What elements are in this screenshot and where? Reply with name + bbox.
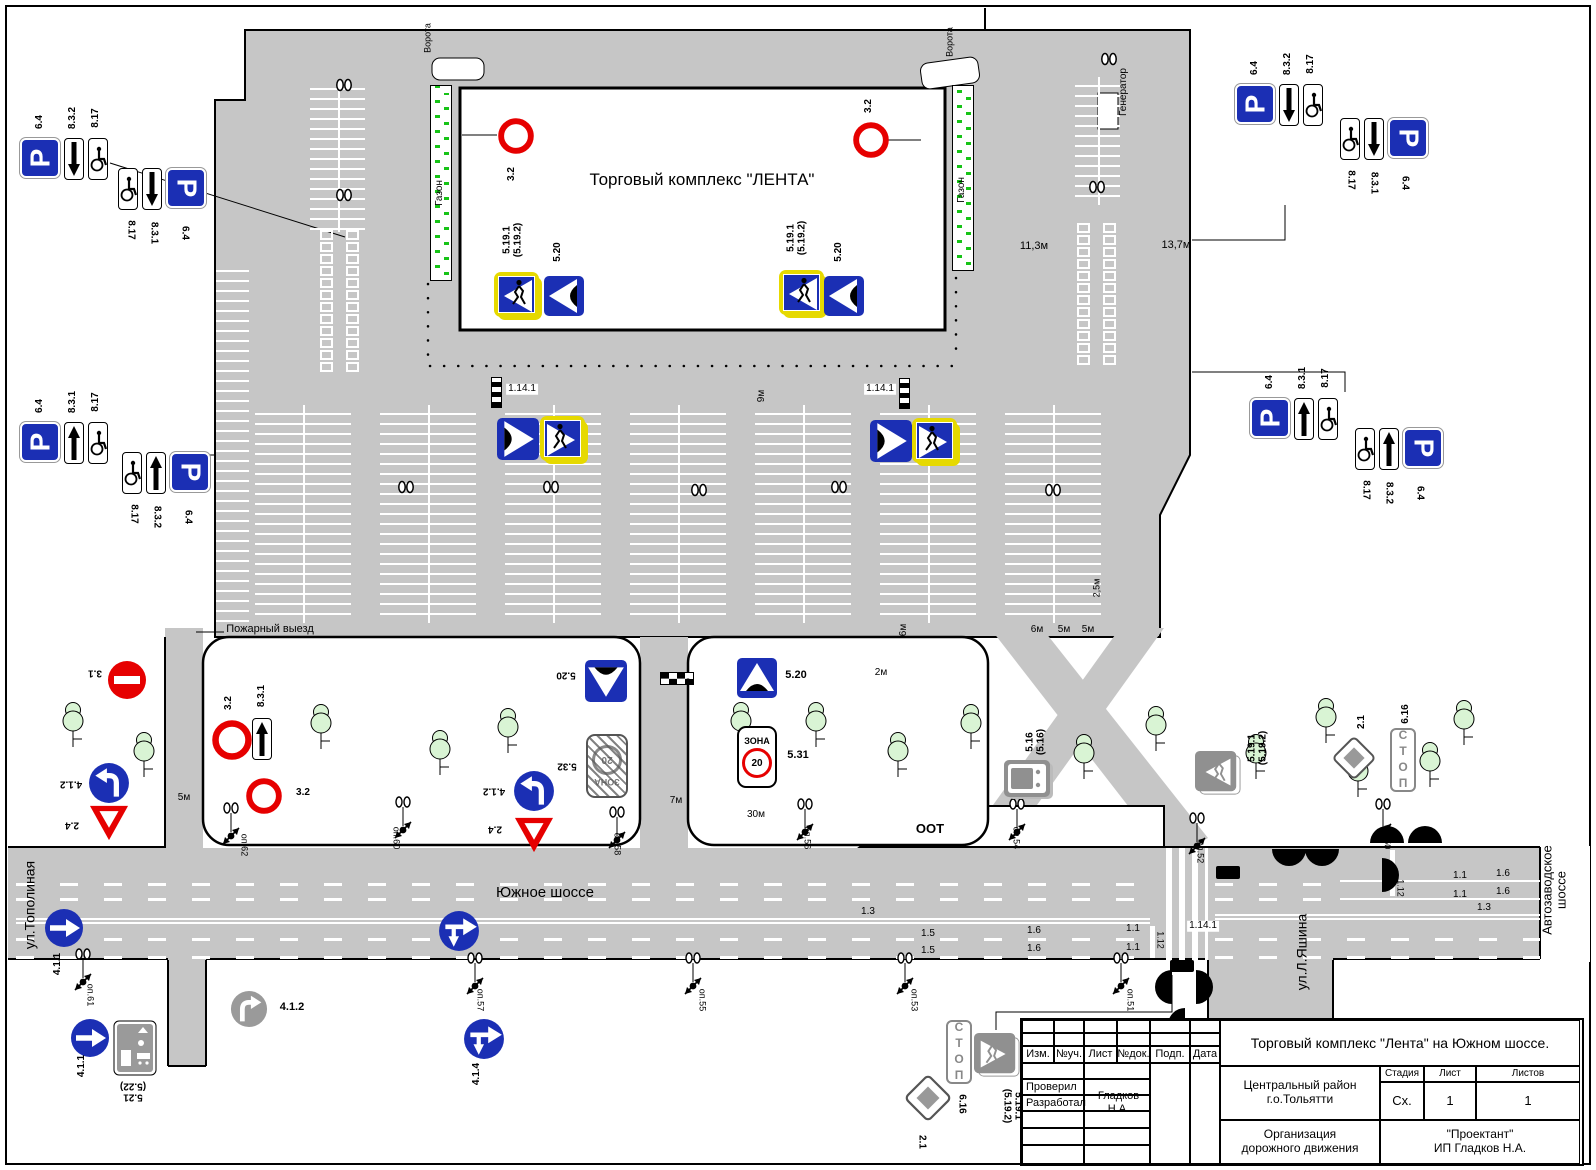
lane-line-marking xyxy=(1150,926,1155,958)
map-label: 5м xyxy=(1082,625,1094,636)
sign-4-1-4 xyxy=(438,910,480,952)
map-label: Газон xyxy=(957,177,968,203)
marked-stall xyxy=(1077,331,1090,341)
sign-5-20 xyxy=(585,660,627,702)
map-label: 5.19.1 (5.19.2) xyxy=(787,221,808,255)
marked-stall xyxy=(1103,271,1116,281)
map-label: ООТ xyxy=(916,822,944,836)
tb-col-podp: Подп. xyxy=(1150,1046,1190,1063)
tb-sheet-value: 1 xyxy=(1424,1082,1476,1120)
parking-stalls xyxy=(255,405,351,623)
map-label: 8.3.1 xyxy=(68,391,79,413)
map-label: 6.4 xyxy=(1265,375,1276,389)
sign-5-20 xyxy=(737,658,777,698)
map-label: 8.3.1 xyxy=(148,222,159,244)
sign-6-4: P xyxy=(1250,398,1290,438)
marked-stall-grid xyxy=(1077,223,1119,367)
map-label: 6.4 xyxy=(35,399,46,413)
marked-stall xyxy=(320,302,333,312)
map-label: 1.6 xyxy=(1027,944,1041,955)
marked-stall xyxy=(346,326,359,336)
tb-checked-label: Проверил xyxy=(1022,1079,1084,1095)
map-label: Генератор xyxy=(1119,68,1130,116)
marked-stall xyxy=(1077,235,1090,245)
map-label: оп.58 xyxy=(612,833,621,855)
street-lamp-icon xyxy=(688,483,710,497)
lane-dash-marking xyxy=(1215,883,1335,886)
map-label: 6.4 xyxy=(1414,486,1425,500)
zebra-crossing xyxy=(1166,848,1208,960)
tb-sheets-value: 1 xyxy=(1476,1082,1580,1120)
marked-stall xyxy=(1103,307,1116,317)
marked-stall xyxy=(1103,235,1116,245)
map-label: ул.Тополиная xyxy=(23,861,38,949)
tb-sheet-label: Лист xyxy=(1424,1066,1476,1082)
marked-stall xyxy=(346,254,359,264)
sign-6-4: P xyxy=(1388,118,1428,158)
sign-4-1-2 xyxy=(88,762,130,804)
marked-stall xyxy=(320,362,333,372)
lane-line-marking xyxy=(1340,898,1540,900)
map-label: 13,7м xyxy=(1162,240,1191,252)
map-label: 1.5 xyxy=(921,946,935,957)
tb-col-uch: №уч. xyxy=(1054,1046,1084,1063)
sign-6-4: P xyxy=(166,168,206,208)
map-label: 8.3.2 xyxy=(68,107,79,129)
tb-empty xyxy=(1084,1145,1150,1164)
map-label: 5.20 xyxy=(785,670,806,682)
map-label: 8.3.1 xyxy=(257,685,268,707)
marked-stall xyxy=(320,290,333,300)
tb-empty xyxy=(1084,1020,1117,1033)
zone-word: ЗОНА xyxy=(744,736,770,746)
map-label: 5.20 xyxy=(553,242,564,261)
tb-empty xyxy=(1022,1145,1084,1164)
marked-stall xyxy=(1103,259,1116,269)
sign-3-2 xyxy=(853,122,889,158)
map-label: 6м xyxy=(899,624,910,636)
lane-line-marking xyxy=(1215,918,1540,920)
map-label: 1.6 xyxy=(1496,887,1510,898)
map-label: Пожарный выезд xyxy=(226,624,314,636)
tb-empty xyxy=(1117,1020,1150,1033)
map-label: 5.31 xyxy=(787,750,808,762)
sign-4-1-1 xyxy=(70,1018,110,1058)
tree-icon xyxy=(126,730,162,782)
sign-5-20 xyxy=(870,420,912,462)
sign-4-1-2 xyxy=(513,770,555,812)
map-label: 1.6 xyxy=(1496,869,1510,880)
marked-stall xyxy=(320,230,333,240)
sign-4-1-4 xyxy=(463,1018,505,1060)
map-label: 1.14.1 xyxy=(506,384,538,395)
traffic-signal-icon xyxy=(1408,826,1442,843)
plate-8-17 xyxy=(1318,398,1338,440)
marked-stall xyxy=(1077,247,1090,257)
street-lamp-icon xyxy=(333,188,355,202)
tb-empty xyxy=(1084,1063,1150,1079)
sign-3-2 xyxy=(498,118,534,154)
marked-stall xyxy=(1077,295,1090,305)
map-label: 30м xyxy=(747,810,765,821)
street-lamp-icon xyxy=(1098,52,1120,66)
map-label: 6.16 xyxy=(1401,704,1412,723)
marked-stall xyxy=(346,278,359,288)
map-label: 8.3.1 xyxy=(1298,367,1309,389)
street-lamp-icon xyxy=(333,78,355,92)
map-label: 5.32 xyxy=(557,760,576,771)
map-label: 6.4 xyxy=(1399,176,1410,190)
map-label: 5м xyxy=(1058,625,1070,636)
tb-empty xyxy=(1084,1128,1150,1145)
map-label: оп.54 xyxy=(1011,827,1020,849)
lane-dash-marking xyxy=(1215,898,1335,901)
traffic-signal-icon xyxy=(1305,849,1339,866)
marked-stall xyxy=(1103,295,1116,305)
sign-6-4: P xyxy=(20,422,60,462)
tb-empty xyxy=(1022,1063,1084,1079)
tb-empty xyxy=(1054,1020,1084,1033)
map-label: 4.1.2 xyxy=(280,1002,304,1014)
map-label: 1.1 xyxy=(1453,890,1467,901)
marked-stall xyxy=(320,326,333,336)
sign-5-32: ЗОНА20 xyxy=(586,734,628,798)
sign-3-1 xyxy=(107,660,147,700)
sign-5-31: ЗОНА20 xyxy=(737,726,777,788)
marked-stall xyxy=(1077,307,1090,317)
tb-empty xyxy=(1054,1033,1084,1046)
map-label: Ворота xyxy=(945,27,954,57)
lane-dash-marking xyxy=(1215,956,1540,959)
map-label: 6.4 xyxy=(179,226,190,240)
lane-dash-marking xyxy=(16,956,1150,959)
traffic-signal-icon xyxy=(1272,849,1306,866)
marked-stall xyxy=(1103,223,1116,233)
street-lamp-icon xyxy=(828,480,850,494)
marked-stall xyxy=(1103,247,1116,257)
marked-stall xyxy=(1077,259,1090,269)
tb-stage-label: Стадия xyxy=(1380,1066,1424,1082)
tb-empty xyxy=(1150,1063,1190,1164)
map-label: 2,5м xyxy=(1092,579,1101,598)
sign-5-20 xyxy=(544,276,584,316)
map-label: оп.52 xyxy=(1195,841,1204,863)
sign-6-16: СТОП xyxy=(946,1020,972,1084)
tb-empty xyxy=(1022,1020,1054,1033)
tree-icon xyxy=(422,728,458,780)
plate-8-17 xyxy=(1355,428,1375,470)
map-label: 4.1.2 xyxy=(60,778,82,789)
plate-8-3 xyxy=(64,422,84,464)
marked-stall-grid xyxy=(320,230,362,374)
map-label: 1.1 xyxy=(1453,871,1467,882)
sign-4-1-1 xyxy=(44,908,84,948)
map-label: 2м xyxy=(875,668,887,679)
map-label: 2.4 xyxy=(488,823,502,834)
map-label: 6.4 xyxy=(182,510,193,524)
tb-col-izm: Изм. xyxy=(1022,1046,1054,1063)
sign-5-19-1 xyxy=(779,270,827,318)
marked-stall xyxy=(1077,355,1090,365)
tree-icon xyxy=(303,702,339,754)
map-label: 5.19.1 (5.19.2) xyxy=(503,223,524,257)
tb-empty xyxy=(1022,1128,1084,1145)
map-label: 7м xyxy=(670,796,682,807)
sign-2-4 xyxy=(87,803,131,843)
sign-6-4: P xyxy=(1235,84,1275,124)
map-label: оп.60 xyxy=(391,827,400,849)
map-label: 4.1.1 xyxy=(77,1055,88,1077)
map-label: 8.17 xyxy=(1360,480,1371,499)
map-label: Автозаводское шоссе xyxy=(1540,845,1567,934)
marked-stall xyxy=(320,242,333,252)
plate-8-17 xyxy=(1340,118,1360,160)
map-label: 4.1.1 xyxy=(53,953,64,975)
plate-8-3 xyxy=(64,138,84,180)
map-label: 1.14.1 xyxy=(864,384,896,395)
sign-5-19-1 xyxy=(494,272,542,320)
tree-icon xyxy=(798,700,834,752)
marked-stall xyxy=(320,338,333,348)
parking-stalls xyxy=(755,405,851,623)
tb-company: "Проектант" ИП Гладков Н.А. xyxy=(1380,1120,1580,1164)
tb-empty xyxy=(1190,1033,1220,1046)
sign-5-19-1 xyxy=(912,418,960,466)
map-label: 8.17 xyxy=(91,392,102,411)
traffic-scheme-page: PPPPPPPPЗОНА20ЗОНА20СТОПСТОПул.Тополиная… xyxy=(0,0,1596,1170)
parking-stalls xyxy=(630,405,726,623)
sign-6-4: P xyxy=(20,138,60,178)
marked-stall xyxy=(1077,343,1090,353)
map-label: 4.1.4 xyxy=(472,1063,483,1085)
map-label: оп.62 xyxy=(239,834,248,856)
map-label: оп.53 xyxy=(909,989,918,1011)
tree-icon xyxy=(953,702,989,754)
map-label: оп.50 xyxy=(1382,827,1391,849)
map-label: оп.61 xyxy=(85,984,94,1006)
map-label: 5м xyxy=(178,793,190,804)
marked-stall xyxy=(320,314,333,324)
marked-stall xyxy=(346,266,359,276)
marked-stall xyxy=(1077,319,1090,329)
sign-2-4 xyxy=(512,815,556,855)
tree-icon xyxy=(1412,740,1448,792)
plate-8-3 xyxy=(1379,428,1399,470)
map-label: 3.2 xyxy=(296,788,310,799)
map-label: 2.4 xyxy=(65,819,79,830)
parking-stalls xyxy=(310,80,365,232)
map-label: 5.20 xyxy=(834,242,845,261)
traffic-signal-icon xyxy=(1155,970,1172,1004)
tb-empty xyxy=(1084,1111,1150,1128)
map-label: оп.55 xyxy=(697,989,706,1011)
map-label: 8.17 xyxy=(125,220,136,239)
tb-col-data: Дата xyxy=(1190,1046,1220,1063)
tb-developer-name: Гладков Н.А. xyxy=(1084,1095,1150,1111)
marked-stall xyxy=(346,350,359,360)
tb-empty xyxy=(1084,1033,1117,1046)
marked-stall xyxy=(1077,223,1090,233)
tb-col-list: Лист xyxy=(1084,1046,1117,1063)
map-label: 1.3 xyxy=(1477,903,1491,914)
tb-empty xyxy=(1150,1020,1190,1033)
map-label: 1.1 xyxy=(1126,943,1140,954)
plate-8-17 xyxy=(118,168,138,210)
street-lamp-icon xyxy=(1042,483,1064,497)
parking-stalls xyxy=(216,262,249,630)
tree-icon xyxy=(1446,698,1482,750)
street-lamp-icon xyxy=(1086,180,1108,194)
tree-icon xyxy=(55,700,91,752)
map-label: 5.20 xyxy=(556,669,575,680)
plate-8-17 xyxy=(88,138,108,180)
map-label: 2.1 xyxy=(916,1135,927,1149)
sign-5-21 xyxy=(113,1020,157,1076)
lane-line-marking xyxy=(1215,914,1540,916)
lane-dash-marking xyxy=(1215,938,1540,941)
tb-stage-value: Сх. xyxy=(1380,1082,1424,1120)
map-label: 6.4 xyxy=(35,115,46,129)
map-label: 1.12 xyxy=(1395,879,1404,897)
tree-icon xyxy=(1138,704,1174,756)
map-label: Ворота xyxy=(423,23,432,53)
lane-line-marking xyxy=(1340,880,1540,882)
map-label: 4.1.2 xyxy=(483,785,505,796)
crossing-pole-marker xyxy=(491,377,502,408)
sign-5-20 xyxy=(497,418,539,460)
tree-icon xyxy=(880,730,916,782)
marked-stall xyxy=(1103,319,1116,329)
map-label: 8.17 xyxy=(1345,170,1356,189)
sign-5-19-1 xyxy=(974,1032,1020,1078)
map-label: 1.5 xyxy=(921,929,935,940)
map-label: 8.3.2 xyxy=(151,506,162,528)
marked-stall xyxy=(1103,331,1116,341)
title-block: Торговый комплекс "Лента" на Южном шоссе… xyxy=(1020,1018,1584,1166)
tree-icon xyxy=(1066,732,1102,784)
marked-stall xyxy=(346,338,359,348)
tb-empty xyxy=(1022,1111,1084,1128)
map-label: 8.3.2 xyxy=(1383,482,1394,504)
map-label: 1.12 xyxy=(1155,931,1164,949)
map-label: 8.17 xyxy=(128,504,139,523)
annotation-layer: PPPPPPPPЗОНА20ЗОНА20СТОПСТОПул.Тополиная… xyxy=(0,0,1596,1170)
plate-8-3 xyxy=(142,168,162,210)
marked-stall xyxy=(320,350,333,360)
map-label: 8.3.2 xyxy=(1283,53,1294,75)
plate-8-3 xyxy=(1294,398,1314,440)
sign-6-4: P xyxy=(170,452,210,492)
marked-stall xyxy=(346,230,359,240)
checker-marking xyxy=(660,672,694,685)
street-lamp-icon xyxy=(540,480,562,494)
tb-district: Центральный район г.о.Тольятти xyxy=(1220,1066,1380,1120)
tb-col-dok: №док. xyxy=(1117,1046,1150,1063)
marked-stall xyxy=(346,314,359,324)
sign-3-2 xyxy=(246,778,282,814)
map-label: 11,3м xyxy=(1020,241,1048,253)
crossing-pole-marker xyxy=(899,378,910,409)
plate-8-3 xyxy=(1364,118,1384,160)
map-label: оп.56 xyxy=(802,827,811,849)
map-label: 8.17 xyxy=(1306,54,1317,73)
map-label: 6.4 xyxy=(1250,61,1261,75)
marked-stall xyxy=(346,242,359,252)
map-label: 3.1 xyxy=(88,667,102,678)
sign-5-16 xyxy=(1004,760,1054,800)
sign-6-4: P xyxy=(1403,428,1443,468)
map-label: 1.6 xyxy=(1027,926,1041,937)
marked-stall xyxy=(346,290,359,300)
street-lamp-icon xyxy=(395,480,417,494)
map-label: 6.16 xyxy=(956,1094,967,1113)
lane-line-marking xyxy=(16,922,1150,924)
stop-bar-marking xyxy=(1216,866,1240,879)
map-label: 3.2 xyxy=(864,99,875,113)
map-label: 5.19.1 (5.19.2) xyxy=(1248,731,1269,765)
marked-stall xyxy=(346,362,359,372)
sign-2-1 xyxy=(1330,734,1378,782)
marked-stall xyxy=(320,266,333,276)
marked-stall xyxy=(1103,283,1116,293)
tb-empty xyxy=(1117,1033,1150,1046)
plate-8-17 xyxy=(88,422,108,464)
plate-8-3 xyxy=(146,452,166,494)
map-label: 8.3.1 xyxy=(1368,172,1379,194)
map-label: оп.51 xyxy=(1125,989,1134,1011)
plate-8-3 xyxy=(252,718,272,760)
lane-line-marking xyxy=(16,918,1150,920)
marked-stall xyxy=(1077,271,1090,281)
tree-icon xyxy=(490,706,526,758)
sign-5-19-1 xyxy=(1195,750,1241,796)
tb-empty xyxy=(1150,1033,1190,1046)
building-title: Торговый комплекс "ЛЕНТА" xyxy=(590,171,815,189)
tb-org: Организация дорожного движения xyxy=(1220,1120,1380,1164)
map-label: ул.Л.Яшина xyxy=(1295,914,1310,991)
map-label: 9м xyxy=(757,390,768,402)
stop-bar-marking xyxy=(1170,960,1194,972)
map-label: 1.1 xyxy=(1126,924,1140,935)
parking-stalls xyxy=(1005,405,1101,623)
map-label: Южное шоссе xyxy=(496,885,594,901)
tb-empty xyxy=(1190,1063,1220,1164)
marked-stall xyxy=(1103,343,1116,353)
marked-stall xyxy=(320,254,333,264)
map-label: 1.14.1 xyxy=(1187,921,1219,932)
tb-sheets-label: Листов xyxy=(1476,1066,1580,1082)
lane-dash-marking xyxy=(16,938,1150,941)
sign-3-2 xyxy=(212,720,252,760)
marked-stall xyxy=(1077,283,1090,293)
map-label: 5.21 (5.22) xyxy=(120,1081,146,1102)
traffic-signal-icon xyxy=(1196,970,1213,1004)
marked-stall xyxy=(346,302,359,312)
marked-stall xyxy=(320,278,333,288)
zone-speed: 20 xyxy=(742,748,772,778)
plate-8-17 xyxy=(1303,84,1323,126)
sign-5-19-1 xyxy=(540,416,588,464)
map-label: 3.2 xyxy=(507,167,518,181)
tb-empty xyxy=(1190,1020,1220,1033)
map-label: 8.17 xyxy=(1321,368,1332,387)
tb-developed-label: Разработал xyxy=(1022,1095,1084,1111)
plate-8-17 xyxy=(122,452,142,494)
map-label: 8.17 xyxy=(91,108,102,127)
map-label: 2.1 xyxy=(1357,715,1368,729)
parking-stalls xyxy=(380,405,476,623)
plate-8-3 xyxy=(1279,84,1299,126)
